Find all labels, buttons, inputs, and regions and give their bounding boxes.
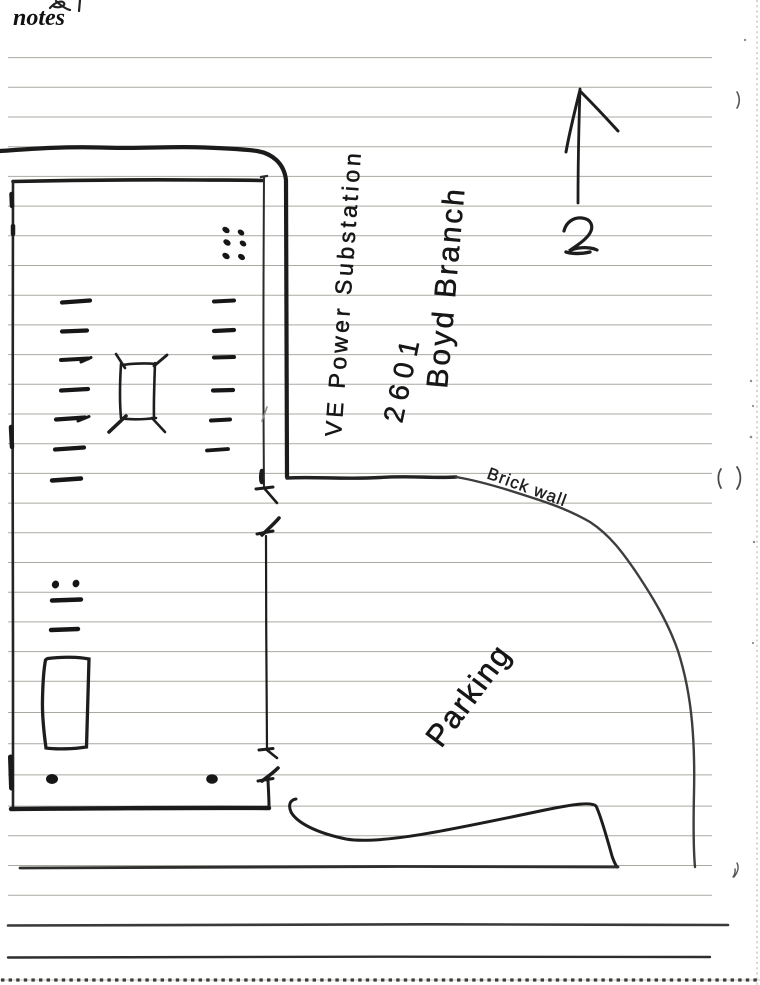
svg-text:2601: 2601: [378, 330, 427, 425]
svg-text:notes: notes: [13, 5, 65, 31]
svg-text:Parking: Parking: [419, 637, 519, 753]
svg-text:VE Power Substation: VE Power Substation: [320, 149, 366, 438]
svg-text:Boyd Branch: Boyd Branch: [421, 185, 472, 390]
